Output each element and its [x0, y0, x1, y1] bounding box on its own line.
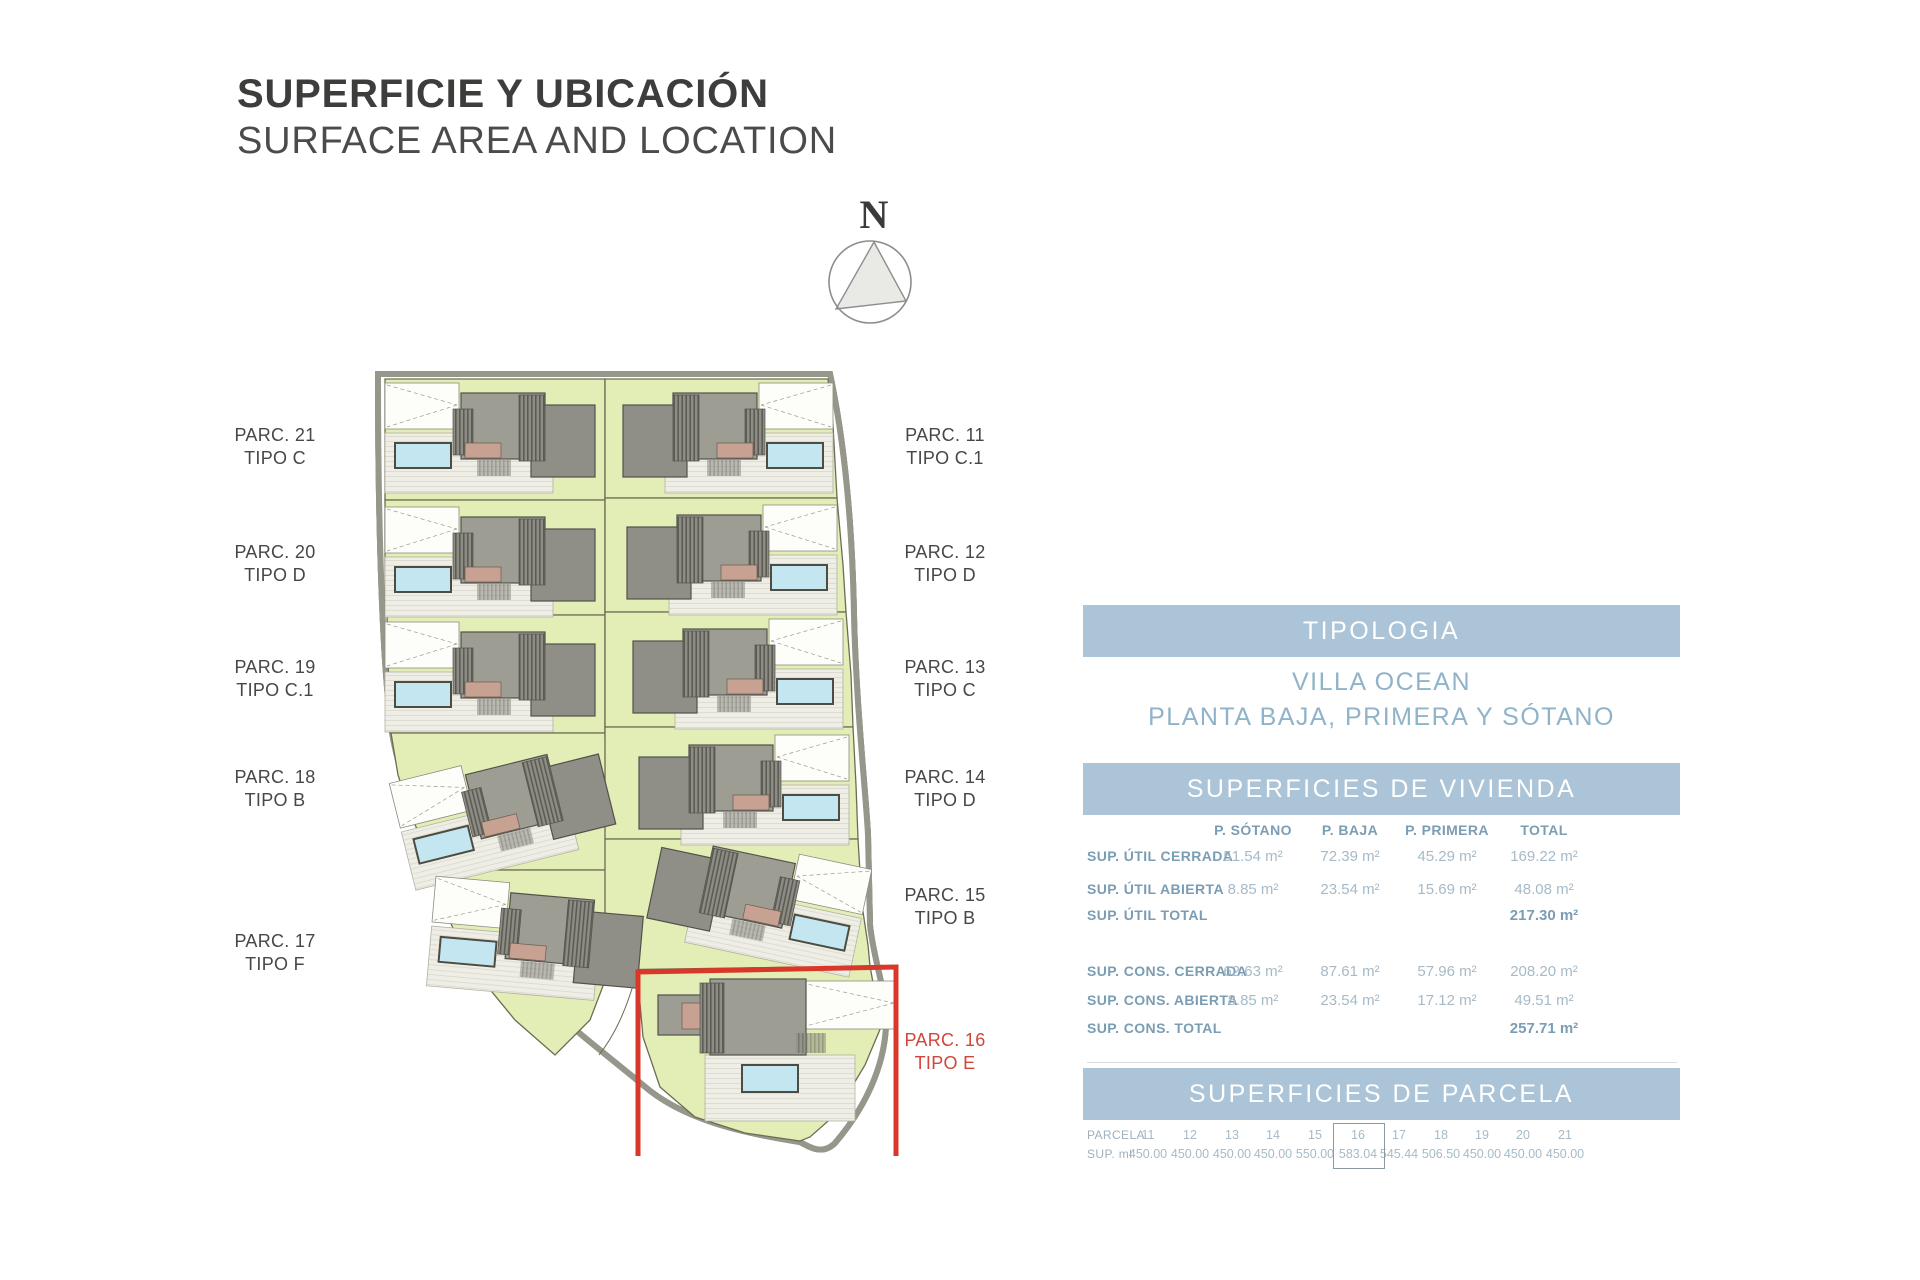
parcela-16-highlight-box: [1333, 1123, 1385, 1169]
parcel-label-19: PARC. 19TIPO C.1: [190, 656, 360, 702]
page-title: SUPERFICIE Y UBICACIÓN: [237, 72, 769, 117]
compass-icon: [829, 241, 911, 323]
parcel-label-16-highlighted: PARC. 16TIPO E: [860, 1029, 1030, 1075]
brochure-page: { "header": { "title": "SUPERFICIE Y UBI…: [0, 0, 1920, 1280]
dwelling-surfaces-header-band: SUPERFICIES DE VIVIENDA: [1083, 763, 1680, 815]
table-row: SUP. CONS. ABIERTA 8.85 m² 23.54 m² 17.1…: [1083, 990, 1680, 1014]
parcel-label-11: PARC. 11TIPO C.1: [860, 424, 1030, 470]
site-plan: [365, 365, 900, 1170]
table-row: SUP. ÚTIL CERRADA 51.54 m² 72.39 m² 45.2…: [1083, 846, 1680, 870]
parcel-label-21: PARC. 21TIPO C: [190, 424, 360, 470]
table-row: SUP. CONS. TOTAL 257.71 m²: [1083, 1018, 1680, 1042]
typology-villa-name: VILLA OCEAN: [1083, 668, 1680, 697]
table-divider: [1087, 1062, 1677, 1063]
table-row: SUP. ÚTIL ABIERTA 8.85 m² 23.54 m² 15.69…: [1083, 879, 1680, 903]
parcel-label-20: PARC. 20TIPO D: [190, 541, 360, 587]
table-row: SUP. CONS. CERRADA 62.63 m² 87.61 m² 57.…: [1083, 961, 1680, 985]
north-compass: N: [812, 186, 932, 331]
col-header-sotano: P. SÓTANO: [1198, 822, 1308, 838]
typology-header-band: TIPOLOGIA: [1083, 605, 1680, 657]
parcel-label-13: PARC. 13TIPO C: [860, 656, 1030, 702]
parcel-label-18: PARC. 18TIPO B: [190, 766, 360, 812]
typology-floors: PLANTA BAJA, PRIMERA Y SÓTANO: [1083, 703, 1680, 732]
parcel-label-15: PARC. 15TIPO B: [860, 884, 1030, 930]
col-header-total: TOTAL: [1489, 822, 1599, 838]
parcel-label-14: PARC. 14TIPO D: [860, 766, 1030, 812]
page-subtitle: SURFACE AREA AND LOCATION: [237, 120, 837, 163]
parcel-label-17: PARC. 17TIPO F: [190, 930, 360, 976]
north-label: N: [860, 192, 889, 237]
col-header-baja: P. BAJA: [1295, 822, 1405, 838]
table-row: SUP. ÚTIL TOTAL 217.30 m²: [1083, 905, 1680, 929]
parcel-label-12: PARC. 12TIPO D: [860, 541, 1030, 587]
col-header-primera: P. PRIMERA: [1392, 822, 1502, 838]
dwelling-table-header-row: P. SÓTANO P. BAJA P. PRIMERA TOTAL: [1083, 820, 1680, 844]
plot-surfaces-header-band: SUPERFICIES DE PARCELA: [1083, 1068, 1680, 1120]
